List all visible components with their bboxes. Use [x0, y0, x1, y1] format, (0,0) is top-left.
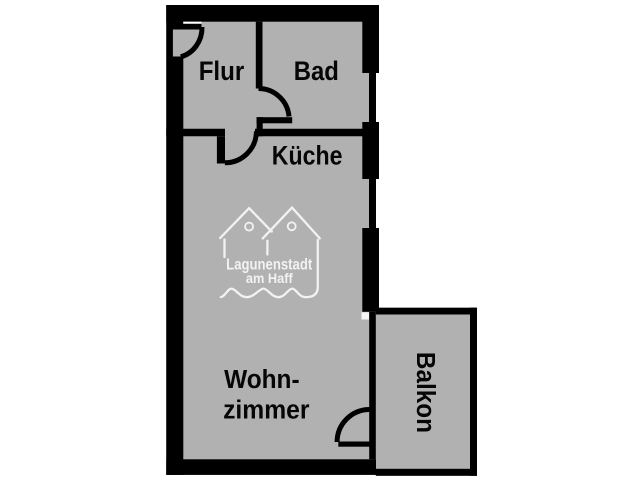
svg-text:Balkon: Balkon: [411, 352, 440, 433]
svg-text:Flur: Flur: [199, 57, 245, 87]
svg-text:zimmer: zimmer: [223, 396, 309, 425]
svg-text:Bad: Bad: [294, 57, 339, 87]
svg-text:am Haff: am Haff: [246, 270, 293, 286]
svg-text:Wohn-: Wohn-: [224, 365, 300, 394]
svg-text:Küche: Küche: [272, 141, 343, 171]
